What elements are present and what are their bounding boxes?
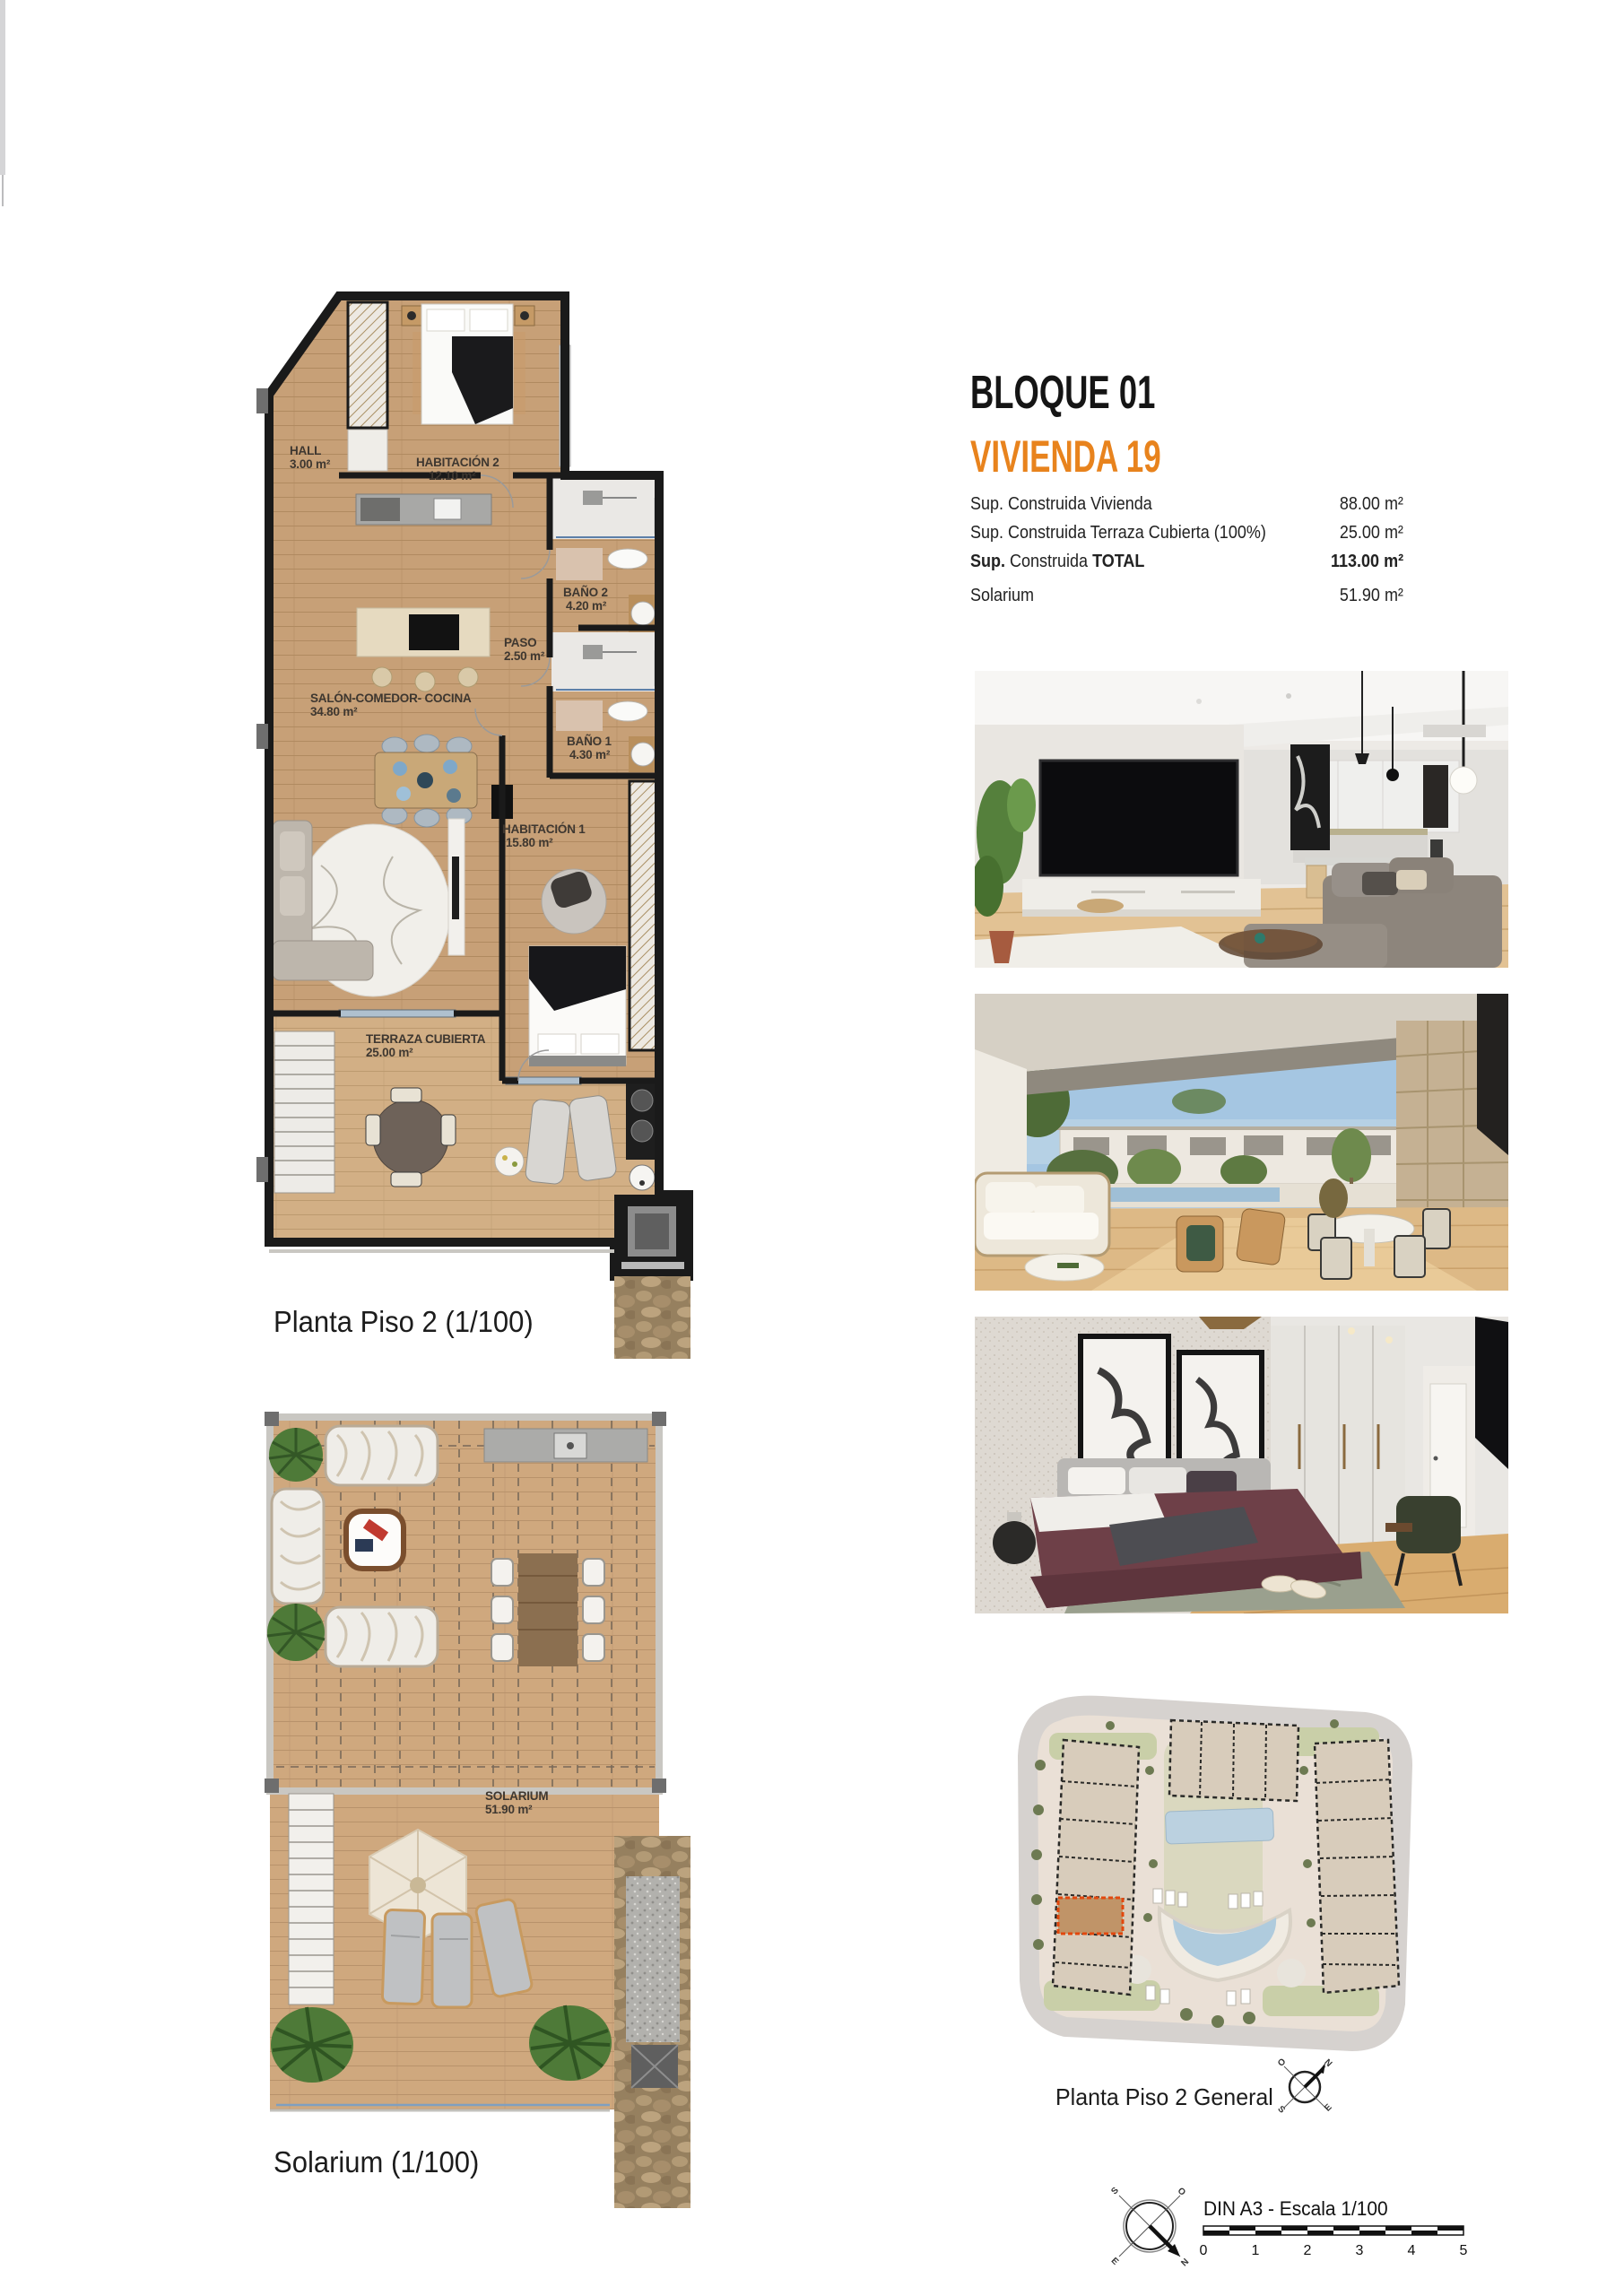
solarium-caption: Solarium (1/100) xyxy=(274,2145,479,2179)
floorplan-planta-piso-2: HALL 3.00 m² HABITACIÓN 2 12.10 m² BAÑO … xyxy=(240,283,693,1359)
svg-text:N: N xyxy=(1179,2257,1191,2268)
room-label: SOLARIUM xyxy=(485,1789,548,1803)
room-label: HALL xyxy=(290,444,321,457)
surface-spec-table: Sup. Construida Vivienda 88.00 m² Sup. C… xyxy=(970,490,1403,610)
plant-icon xyxy=(269,1428,323,1482)
room-label: BAÑO 2 xyxy=(563,586,608,599)
svg-text:E: E xyxy=(1323,2102,1334,2114)
palm-icon xyxy=(529,2005,612,2081)
site-block-top xyxy=(1169,1720,1298,1801)
floorplan-caption: Planta Piso 2 (1/100) xyxy=(274,1305,534,1339)
title-block: BLOQUE 01 VIVIENDA 19 xyxy=(970,366,1243,483)
svg-text:4: 4 xyxy=(1408,2243,1416,2258)
unit-title: VIVIENDA 19 xyxy=(970,430,1161,483)
svg-text:15.80 m²: 15.80 m² xyxy=(506,836,553,849)
svg-text:0: 0 xyxy=(1200,2243,1208,2258)
stone-path-patch xyxy=(614,1276,690,1359)
photo-living-room xyxy=(975,671,1508,968)
spec-row: Sup. Construida Vivienda 88.00 m² xyxy=(970,490,1403,518)
scale-bar: 0 1 2 3 4 5 xyxy=(1193,2222,1480,2269)
room-label: HABITACIÓN 1 xyxy=(502,822,586,836)
svg-text:51.90 m²: 51.90 m² xyxy=(485,1803,533,1816)
floorplan-solarium: SOLARIUM 51.90 m² xyxy=(240,1392,698,2208)
spec-row: Solarium 51.90 m² xyxy=(970,581,1403,610)
highlighted-unit xyxy=(1058,1898,1123,1934)
svg-text:12.10 m²: 12.10 m² xyxy=(429,469,476,483)
svg-text:5: 5 xyxy=(1460,2243,1468,2258)
brochure-page: HALL 3.00 m² HABITACIÓN 2 12.10 m² BAÑO … xyxy=(0,0,1624,2296)
photo-terrace xyxy=(975,994,1508,1291)
compass-icon: N O S E xyxy=(1273,2054,1336,2117)
page-edge-line xyxy=(2,175,4,206)
svg-text:2.50 m²: 2.50 m² xyxy=(504,649,545,663)
scale-title: DIN A3 - Escala 1/100 xyxy=(1203,2197,1388,2221)
svg-text:E: E xyxy=(1109,2256,1121,2267)
room-label: BAÑO 1 xyxy=(567,735,612,748)
site-block-left xyxy=(1053,1740,1139,1995)
svg-text:O: O xyxy=(1176,2186,1187,2197)
palm-icon xyxy=(271,2007,353,2083)
svg-text:1: 1 xyxy=(1252,2243,1260,2258)
svg-text:4.30 m²: 4.30 m² xyxy=(569,748,611,761)
plant-icon xyxy=(267,1604,325,1661)
room-label: HABITACIÓN 2 xyxy=(416,456,499,469)
svg-text:34.80 m²: 34.80 m² xyxy=(310,705,358,718)
svg-text:S: S xyxy=(1109,2186,1121,2197)
svg-text:25.00 m²: 25.00 m² xyxy=(366,1046,413,1059)
siteplan-caption: Planta Piso 2 General xyxy=(1055,2083,1273,2111)
site-block-right xyxy=(1315,1740,1399,1993)
svg-text:2: 2 xyxy=(1304,2243,1312,2258)
svg-text:4.20 m²: 4.20 m² xyxy=(566,599,607,613)
svg-text:S: S xyxy=(1275,2104,1287,2116)
svg-text:3: 3 xyxy=(1356,2243,1364,2258)
block-title: BLOQUE 01 xyxy=(970,366,1161,420)
spec-row: Sup. Construida Terraza Cubierta (100%) … xyxy=(970,518,1403,547)
room-label: TERRAZA CUBIERTA xyxy=(366,1032,486,1046)
compass-icon-footer: O S E N xyxy=(1105,2181,1194,2271)
spec-row-total: Sup. Construida TOTAL 113.00 m² xyxy=(970,547,1403,576)
photo-bedroom xyxy=(975,1317,1508,1613)
page-edge-strip xyxy=(0,0,5,175)
room-label: PASO xyxy=(504,636,536,649)
site-plan xyxy=(1003,1684,1415,2061)
room-label: SALÓN-COMEDOR- COCINA xyxy=(310,691,472,705)
svg-text:O: O xyxy=(1276,2057,1288,2068)
svg-text:3.00 m²: 3.00 m² xyxy=(290,457,331,471)
